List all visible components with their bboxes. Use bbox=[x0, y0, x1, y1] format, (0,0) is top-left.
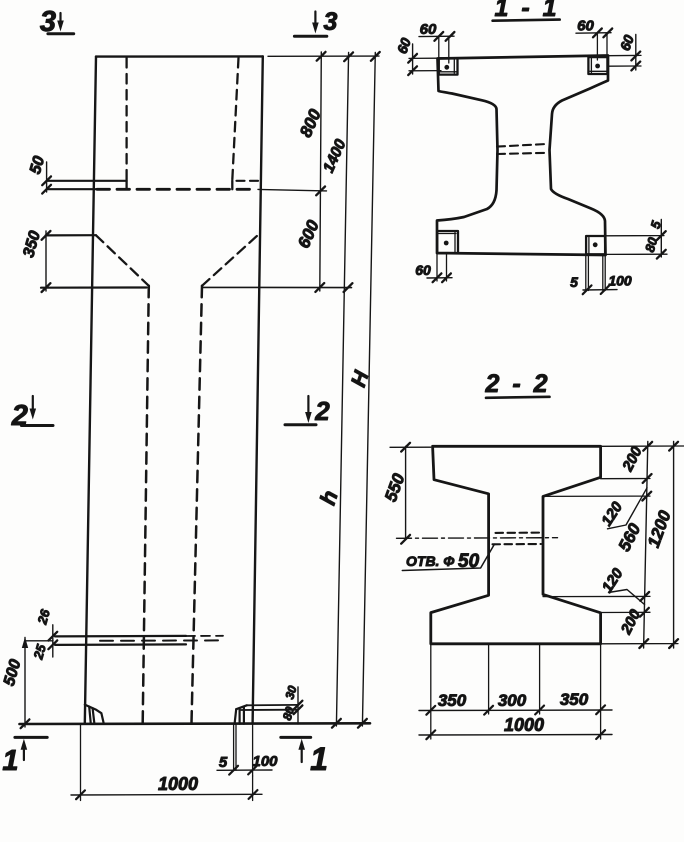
svg-text:60: 60 bbox=[617, 33, 637, 53]
svg-text:1200: 1200 bbox=[644, 508, 675, 551]
svg-text:550: 550 bbox=[381, 471, 409, 505]
svg-text:60: 60 bbox=[415, 262, 431, 278]
svg-text:600: 600 bbox=[294, 217, 323, 251]
svg-text:2 - 2: 2 - 2 bbox=[484, 370, 550, 398]
svg-text:1: 1 bbox=[2, 745, 18, 777]
svg-text:350: 350 bbox=[20, 229, 44, 259]
svg-text:h: h bbox=[315, 487, 343, 508]
svg-text:200: 200 bbox=[617, 606, 644, 637]
svg-text:350: 350 bbox=[560, 690, 589, 709]
svg-text:ОТВ. Ф: ОТВ. Ф bbox=[406, 553, 454, 569]
svg-text:100: 100 bbox=[252, 753, 278, 770]
svg-text:120: 120 bbox=[599, 565, 627, 596]
svg-text:2: 2 bbox=[11, 400, 28, 432]
svg-text:3: 3 bbox=[324, 8, 338, 36]
svg-text:120: 120 bbox=[598, 498, 626, 529]
svg-text:1000: 1000 bbox=[504, 715, 544, 735]
svg-text:26: 26 bbox=[34, 607, 53, 627]
svg-text:2: 2 bbox=[314, 396, 330, 426]
svg-text:1: 1 bbox=[310, 741, 328, 777]
svg-text:60: 60 bbox=[577, 18, 594, 35]
svg-text:500: 500 bbox=[1, 657, 25, 687]
svg-text:5: 5 bbox=[219, 754, 228, 771]
svg-text:350: 350 bbox=[438, 691, 467, 710]
svg-text:50: 50 bbox=[27, 154, 48, 176]
svg-text:560: 560 bbox=[615, 520, 645, 554]
svg-text:60: 60 bbox=[394, 36, 414, 56]
svg-text:1000: 1000 bbox=[158, 774, 198, 794]
svg-text:30: 30 bbox=[282, 684, 299, 701]
svg-text:100: 100 bbox=[608, 273, 632, 289]
svg-text:60: 60 bbox=[420, 21, 437, 38]
svg-text:1400: 1400 bbox=[320, 137, 350, 176]
svg-text:200: 200 bbox=[619, 443, 646, 474]
svg-text:5: 5 bbox=[570, 274, 578, 290]
svg-text:25: 25 bbox=[30, 642, 49, 662]
svg-text:300: 300 bbox=[498, 691, 527, 710]
